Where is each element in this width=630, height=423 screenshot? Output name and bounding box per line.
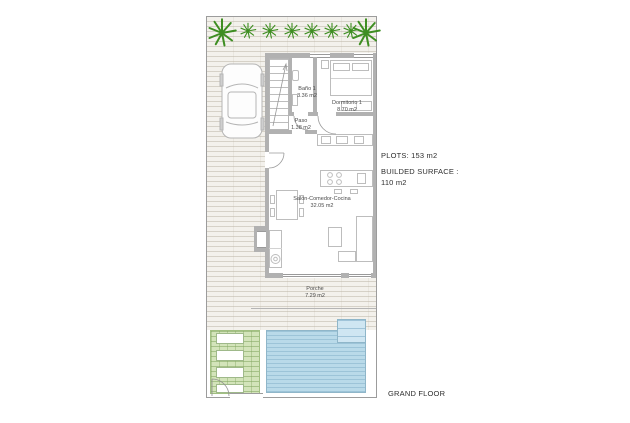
garden-gate (230, 393, 263, 399)
room-name: Dormitorio 1 (332, 100, 362, 106)
room-area: 8.70 m2 (337, 107, 357, 113)
room-name: Porche (306, 286, 323, 292)
room-label-salon: Salón-Comedor-Cocina 32.05 m2 (282, 196, 362, 210)
room-label-bano: Baño 1 3.36 m2 (287, 86, 327, 100)
room-name: Baño 1 (298, 86, 315, 92)
room-name: Salón-Comedor-Cocina (293, 196, 350, 202)
floor-title: GRAND FLOOR (388, 389, 445, 398)
built-surface-text: BUILDED SURFACE : (381, 167, 459, 176)
room-area: 3.36 m2 (297, 93, 317, 99)
room-area: 1.38 m2 (291, 125, 311, 131)
plots-text: PLOTS: 153 m2 (381, 151, 437, 160)
room-label-dormitorio: Dormitorio 1 8.70 m2 (317, 100, 377, 114)
room-label-porche: Porche 7.29 m2 (285, 286, 345, 300)
built-surface-value: 110 m2 (381, 178, 407, 187)
room-area: 7.29 m2 (305, 293, 325, 299)
room-label-paso: Paso 1.38 m2 (281, 118, 321, 132)
floor-plan-canvas: Baño 1 3.36 m2 Dormitorio 1 8.70 m2 Paso… (0, 0, 630, 423)
room-name: Paso (295, 118, 308, 124)
room-area: 32.05 m2 (311, 203, 334, 209)
